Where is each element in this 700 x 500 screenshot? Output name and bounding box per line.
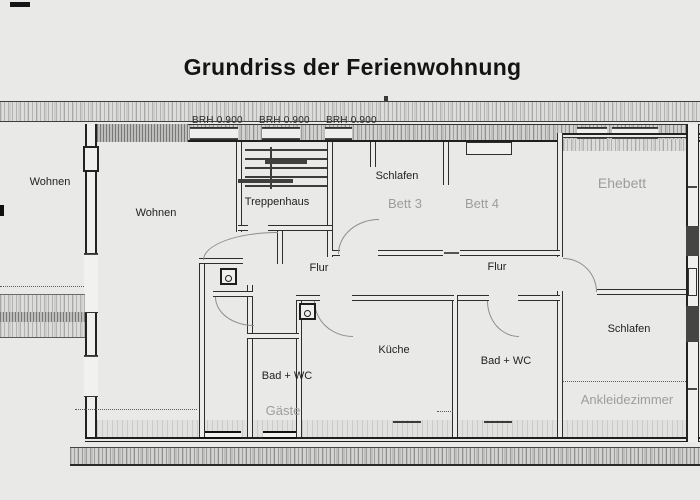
wall-wohnen-east xyxy=(199,259,205,437)
room-label-schlafen-nord: Schlafen xyxy=(376,170,419,182)
terrace-dotted-line xyxy=(0,286,84,287)
wall-treppenhaus-south xyxy=(238,225,248,231)
wall-treppenhaus-west xyxy=(236,142,242,232)
wohnen-dotted-line xyxy=(75,409,197,410)
room-label-ankleidezimmer: Ankleidezimmer xyxy=(581,392,673,407)
window-sill xyxy=(688,388,697,390)
door-arc xyxy=(203,232,278,260)
exterior-wall-bottom xyxy=(85,437,700,442)
window xyxy=(84,355,98,397)
room-label-kueche: Küche xyxy=(378,344,409,356)
stair-rail xyxy=(238,179,293,183)
window xyxy=(84,253,98,313)
room-label-wohnen-left: Wohnen xyxy=(30,176,71,188)
wardrobe xyxy=(466,142,512,155)
exterior-wall-top-dark-segment xyxy=(85,124,188,142)
wall-schlafen-ehebett-upper xyxy=(557,133,563,257)
wall-bad-schlafen-lower xyxy=(557,291,563,437)
window xyxy=(262,127,300,140)
door-arc xyxy=(338,219,379,254)
stair-tread xyxy=(245,176,327,178)
room-label-schlafen-sued: Schlafen xyxy=(608,323,651,335)
exterior-wall-band-bottom xyxy=(70,447,700,466)
flue-circle-icon xyxy=(225,275,232,282)
wall-treppenhaus-south xyxy=(268,225,332,231)
window-sill xyxy=(484,421,512,423)
room-label-flur-west: Flur xyxy=(310,262,329,274)
window-sill xyxy=(199,431,241,439)
room-label-bad-wc-ost: Bad + WC xyxy=(481,355,531,367)
wall-flur-south xyxy=(458,295,489,301)
staircase xyxy=(245,149,327,189)
window-sill xyxy=(688,186,697,188)
door-arc xyxy=(563,258,597,292)
interior-wall-ehebett-top xyxy=(558,133,700,138)
window xyxy=(190,127,238,140)
room-label-ehebett: Ehebett xyxy=(598,175,646,191)
bottom-wall-inner-hatch xyxy=(97,420,686,437)
wall-kueche-bad xyxy=(452,295,458,437)
room-label-treppenhaus: Treppenhaus xyxy=(245,196,309,208)
wall-flur-north xyxy=(378,250,443,256)
wall-pillar xyxy=(83,146,99,172)
wall-schlafen-stub xyxy=(370,142,376,167)
wall-flur-south xyxy=(518,295,560,301)
wall-bett-stub xyxy=(443,142,449,185)
stair-tread xyxy=(245,167,327,169)
window xyxy=(688,268,697,296)
wall-solid-segment xyxy=(686,306,699,342)
room-label-wohnen: Wohnen xyxy=(136,207,177,219)
window xyxy=(325,127,352,140)
terrace-wall-core xyxy=(0,312,85,322)
flue-circle-icon xyxy=(304,310,311,317)
room-label-bett-4: Bett 4 xyxy=(465,196,499,211)
window-sill xyxy=(393,421,421,423)
stair-rail xyxy=(265,160,307,164)
door-arc xyxy=(314,301,353,337)
stair-tread xyxy=(245,185,327,187)
wall-ehebett-schlafen xyxy=(597,289,686,295)
page-title: Grundriss der Ferienwohnung xyxy=(150,54,555,81)
wall-bad-west-north xyxy=(247,333,299,339)
scan-artifact xyxy=(10,2,30,7)
wall-flur-south xyxy=(352,295,454,301)
room-label-bad-wc-west: Bad + WC xyxy=(262,370,312,382)
room-label-gaeste: Gäste xyxy=(266,403,301,418)
wall-solid-segment xyxy=(686,226,699,256)
wall-joint-dots xyxy=(437,411,453,412)
stair-tread xyxy=(245,149,327,151)
wall-hatch-ehebett xyxy=(563,139,686,151)
wall-flur-north xyxy=(460,250,560,256)
wall-treppenhaus-east xyxy=(327,142,333,257)
room-label-bett-3: Bett 3 xyxy=(388,196,422,211)
door-arc xyxy=(215,297,254,326)
room-label-flur-ost: Flur xyxy=(488,261,507,273)
window-sill xyxy=(263,431,296,439)
chimney-icon xyxy=(299,303,316,320)
chimney-icon xyxy=(220,268,237,285)
scanned-floor-plan-page: Grundriss der Ferienwohnung BRH 0.900 BR… xyxy=(0,0,700,500)
window-sill xyxy=(444,252,459,254)
scan-artifact xyxy=(0,205,4,216)
door-arc xyxy=(487,301,519,337)
ankleidezimmer-dotted-line xyxy=(563,381,686,382)
